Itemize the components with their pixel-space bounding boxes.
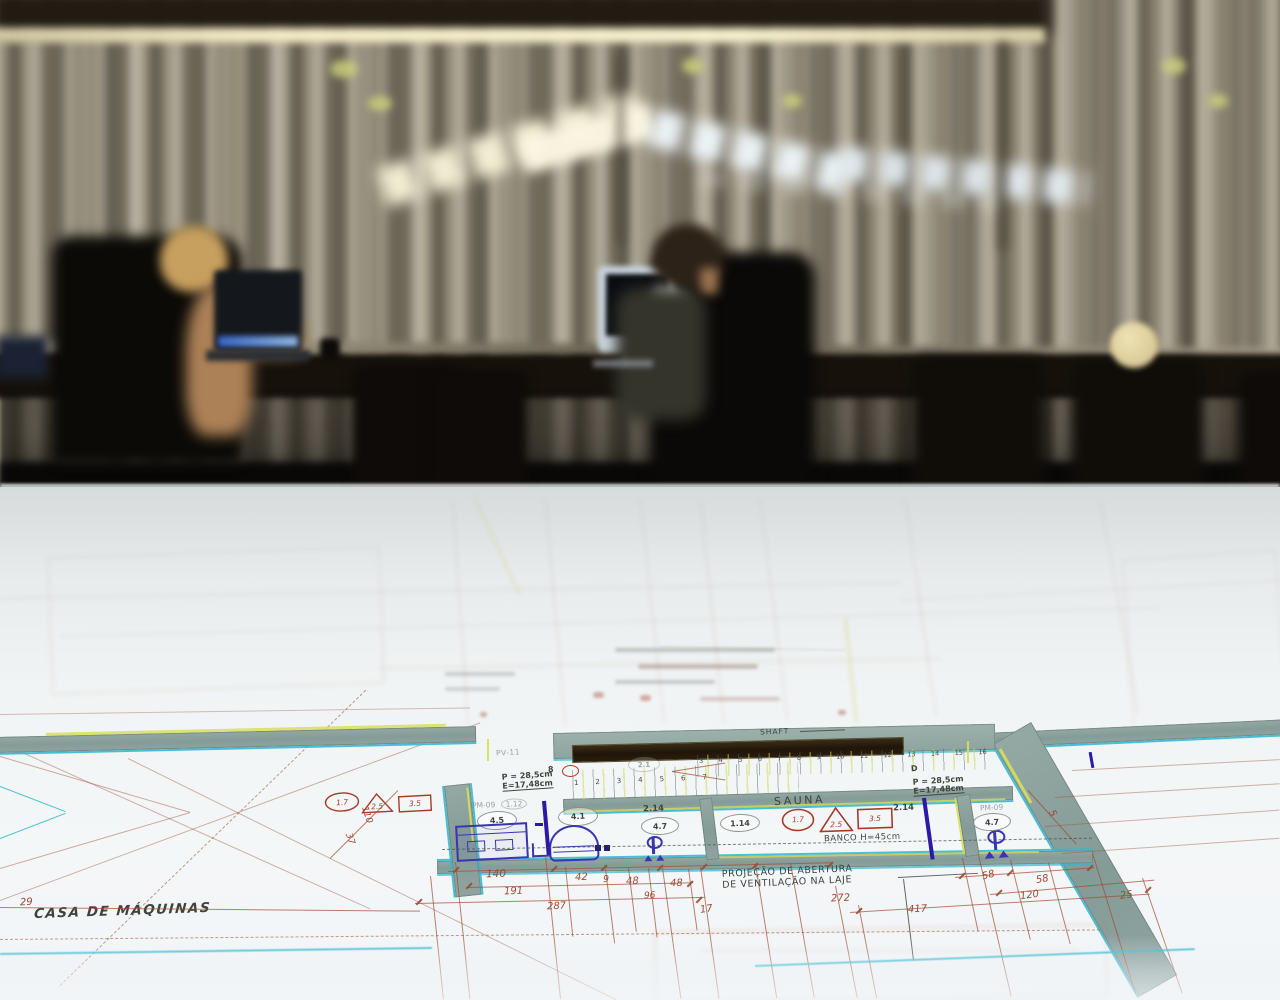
yellow-accent-line: [487, 739, 489, 761]
dim-17: 17: [699, 903, 713, 916]
ceiling-spot-light: [368, 96, 392, 111]
ceiling-light-strip: [0, 28, 1045, 43]
stair-number: 13: [907, 750, 916, 758]
stair-number: 12: [883, 751, 892, 759]
truss-pole: [998, 40, 1008, 250]
finish-value: 2.5: [819, 819, 853, 829]
stair-number: 4: [638, 776, 643, 784]
pm09-ref-oval: 1.12: [500, 798, 527, 810]
man-shoulder: [616, 288, 706, 420]
finish-value: 3.5: [398, 798, 432, 809]
casa-maquinas-label: CASA DE MÁQUINAS: [33, 900, 211, 922]
dim-272: 272: [831, 893, 851, 905]
stair-spec-right: P = 28,5cm E=17,48cm: [912, 774, 964, 797]
dim-48b: 48: [670, 878, 683, 889]
ceiling-spot-light: [782, 94, 802, 108]
dimension-line: [565, 867, 573, 937]
mark-8: 8: [548, 765, 554, 774]
ceiling-spot-light: [1162, 58, 1186, 74]
shower-symbol: [644, 838, 665, 863]
dimension-line: [430, 876, 444, 999]
stair-spec-left: P = 28,5cm E=17,48cm: [501, 769, 553, 792]
pool-edge-cyan-line: [0, 813, 66, 839]
shaft-label: SHAFT: [760, 726, 790, 736]
blurred-annotation: [638, 664, 758, 669]
blurred-plan-line: [700, 950, 1080, 951]
ramp-edge-line: [0, 756, 190, 813]
stair-number: 5: [659, 775, 664, 783]
dim-58a: 58: [981, 869, 996, 883]
dim-287: 287: [547, 901, 566, 913]
bathtub-fixture: [548, 824, 599, 862]
stair-number: 11: [860, 752, 869, 760]
faint-yellow-line: [845, 618, 858, 723]
office-chair: [912, 356, 1044, 494]
finish-symbol-square: 3.5: [857, 807, 894, 829]
grid-line: [1072, 759, 1280, 771]
photo-of-office-with-blueprint: SHAFT 345678910111213141516 1234567 2.1 …: [0, 0, 1280, 1000]
laptop-taskbar-glow: [218, 336, 298, 347]
dim-417: 417: [908, 904, 928, 916]
pm09-text: PM-09: [472, 800, 496, 810]
dim-140: 140: [486, 868, 506, 881]
finish-symbol-square: 3.5: [398, 794, 433, 813]
stair-number: 7: [777, 754, 781, 762]
blurred-red-mark: [838, 710, 846, 715]
room-tag: 4.1: [558, 806, 599, 827]
stair-number: 10: [836, 752, 845, 760]
dimension-line: [545, 856, 561, 999]
finish-value: 3.5: [857, 813, 893, 823]
faint-plan-rectangle: [1122, 550, 1280, 737]
cyan-accent-line: [442, 786, 455, 898]
ceiling-spot-light: [330, 60, 358, 78]
blurred-annotation: [445, 687, 500, 691]
yellow-accent-line: [954, 798, 965, 853]
red-cross-mark: [672, 763, 726, 779]
office-chair: [1238, 372, 1280, 492]
dim-96: 96: [644, 891, 656, 901]
room-tag: 1.14: [720, 813, 761, 832]
door-jamb-nub: [535, 823, 543, 826]
stair-number: 3: [617, 777, 622, 785]
finish-symbol-circle: 1.7: [781, 807, 816, 832]
faint-grid-line: [545, 500, 566, 727]
coffee-cup: [320, 338, 340, 360]
faint-grid-line: [905, 500, 937, 718]
stair-number: 5: [738, 756, 742, 764]
sink-counter: [455, 822, 529, 862]
stair-number: 2: [595, 778, 600, 786]
pm09-right-label: PM-09: [980, 802, 1004, 812]
shower-symbol: [983, 831, 1009, 861]
blurred-annotation: [445, 672, 515, 676]
stair-number: 14: [931, 749, 940, 757]
dimension-line: [468, 882, 693, 888]
finish-value: 1.7: [781, 814, 815, 824]
cyan-accent-line: [0, 742, 476, 755]
room-tag: 4.7: [641, 816, 680, 835]
sphere-object: [1110, 322, 1158, 368]
finish-value: 1.7: [324, 797, 360, 808]
blueprint-sheet: SHAFT 345678910111213141516 1234567 2.1 …: [0, 487, 1280, 1000]
pm09-left-label: PM-09 1.12: [472, 799, 528, 810]
grid-line: [1055, 783, 1280, 798]
pool-edge-cyan-line: [0, 786, 66, 812]
ceiling-spot-light: [682, 58, 704, 74]
truss-pole: [616, 55, 625, 245]
blurred-red-mark: [480, 712, 487, 717]
room-tag: 4.7: [973, 812, 1012, 832]
stair-number: 8: [797, 754, 801, 762]
sauna-label: SAUNA: [774, 793, 826, 808]
laptop-base: [206, 350, 310, 361]
dim-48a: 48: [626, 876, 639, 887]
d-mark: D: [911, 764, 918, 773]
room-value: 2.14: [643, 804, 664, 815]
keyboard: [593, 360, 653, 367]
stair-number: 9: [816, 753, 820, 761]
man-neck: [700, 268, 718, 294]
blurred-red-mark: [640, 695, 651, 701]
stair-number: 15: [955, 749, 964, 757]
blurred-annotation: [615, 680, 715, 684]
stair-number: 6: [758, 755, 762, 763]
dim-9: 9: [603, 874, 609, 885]
cyan-pool-line: [0, 947, 432, 955]
dim-25: 25: [1119, 889, 1133, 902]
projecao-note: PROJEÇÃO DE ABERTURA DE VENTILAÇÃO NA LA…: [722, 863, 854, 891]
faint-grid-line: [760, 500, 788, 720]
stair-number: 1: [574, 779, 579, 787]
office-chair: [428, 370, 528, 492]
faint-grid-line: [700, 500, 725, 724]
dim-191: 191: [504, 886, 523, 898]
dim-42: 42: [575, 872, 588, 883]
faint-top-line: [0, 707, 470, 715]
dim-58b: 58: [1035, 873, 1049, 886]
banco-label: BANCO H=45cm: [824, 832, 901, 844]
far-left-laptop: [0, 336, 48, 378]
faint-yellow-line: [473, 496, 520, 595]
blurred-red-mark: [593, 692, 604, 698]
faint-grid-line: [640, 500, 665, 724]
dimension-line: [648, 868, 658, 938]
dim-29: 29: [20, 897, 33, 909]
plan-diagonal-line: [0, 742, 371, 909]
finish-symbol-triangle: 2.5: [819, 806, 854, 832]
blurred-annotation: [700, 697, 780, 701]
dimension-line: [962, 858, 979, 932]
ceiling-spot-light: [1208, 94, 1228, 108]
office-chair: [1072, 360, 1204, 494]
pv11-label: PV-11: [496, 747, 520, 757]
faint-plan-rectangle: [48, 546, 385, 695]
finish-symbol-circle: 1.7: [324, 791, 361, 813]
stair-spec-e: E=17,48cm: [502, 778, 554, 792]
door-swing-line: [1089, 752, 1095, 768]
room-value: 2.14: [893, 803, 914, 814]
faint-grid-line: [452, 500, 469, 728]
stair-number: 16: [978, 748, 987, 756]
yellow-accent-line: [46, 724, 446, 736]
blurred-plan-rectangle: [654, 924, 1107, 1000]
